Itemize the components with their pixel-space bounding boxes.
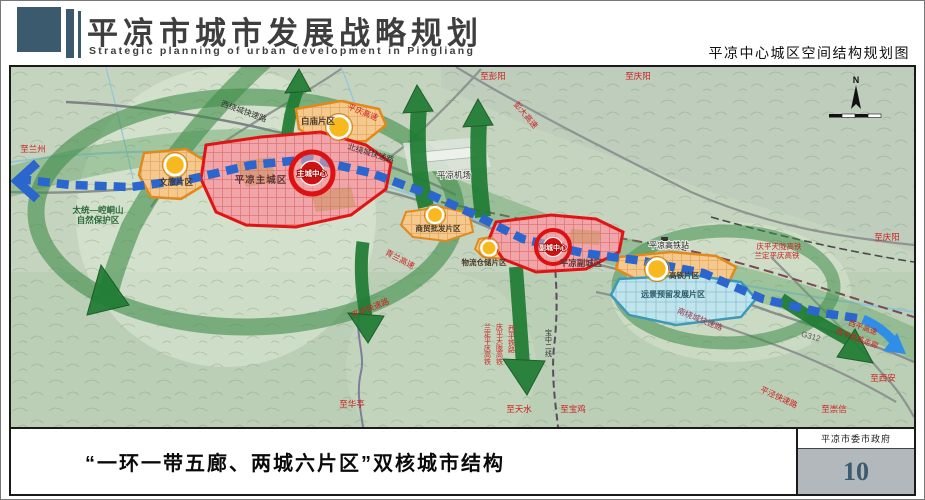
logo-bar-thin: [78, 11, 81, 58]
logo-bar-thick: [66, 9, 74, 58]
planning-document-page: 平凉市城市发展战略规划 Strategic planning of urban …: [0, 0, 925, 500]
planning-map: N 平凉主城区 主城中心 平凉副城区 副城中心 白庙片区 文旅片区 商贸批发片区…: [9, 65, 916, 429]
label-to-xian: 至西安: [870, 373, 896, 383]
label-baimiao: 白庙片区: [301, 116, 336, 126]
label-v-rail2: 宝中二线: [545, 328, 553, 357]
label-to-baoji: 至宝鸡: [560, 404, 586, 414]
center-shangmao: [425, 205, 446, 226]
label-yuanjing: 远景预留发展片区: [641, 289, 705, 299]
label-sub-center: 副城中心: [539, 243, 567, 252]
label-to-pengyang: 至彭阳: [480, 71, 506, 81]
footer-info-box: 平凉市委市政府 10: [796, 429, 914, 494]
scale-bar: [829, 114, 881, 118]
map-svg: N 平凉主城区 主城中心 平凉副城区 副城中心 白庙片区 文旅片区 商贸批发片区…: [11, 67, 914, 427]
logo-square: [17, 7, 61, 52]
label-to-huating: 至华亭: [339, 399, 365, 409]
label-to-tianshui: 至天水: [506, 404, 532, 414]
center-wenlv: [163, 153, 188, 178]
label-shangmao: 商贸批发片区: [416, 223, 461, 233]
label-to-lanzhou: 至兰州: [20, 144, 46, 154]
label-nature-reserve-1: 太统—崆峒山: [71, 205, 123, 215]
label-v-rail1: 西平铁路: [508, 325, 516, 354]
label-wuliu: 物流仓储片区: [462, 257, 507, 267]
page-number: 10: [798, 449, 914, 494]
label-hsr1: 庆平天陇高铁: [757, 241, 802, 251]
compass-n-label: N: [853, 75, 860, 85]
organization-name: 平凉市委市政府: [798, 429, 914, 449]
label-v-hsr1: 兰定平庆高铁: [484, 322, 492, 366]
label-v-hsr2: 庆平天陇高铁: [496, 322, 504, 366]
label-sub-city: 平凉副城区: [560, 258, 603, 268]
map-caption: 平凉中心城区空间结构规划图: [709, 43, 911, 63]
label-hsr2: 兰定平庆高铁: [755, 250, 800, 260]
page-subtitle: Strategic planning of urban development …: [89, 45, 475, 57]
label-airport: 平凉机场: [437, 170, 471, 180]
center-wuliu: [479, 238, 499, 258]
label-wenlv: 文旅片区: [159, 177, 194, 187]
structure-caption: “一环一带五廊、两城六片区”双核城市结构: [11, 429, 796, 494]
center-gaotie: [645, 257, 670, 282]
label-gaotie: 高铁片区: [669, 270, 699, 280]
label-main-city: 平凉主城区: [235, 174, 288, 186]
label-to-chongxin: 至崇信: [821, 404, 847, 414]
label-nature-reserve-2: 自然保护区: [77, 215, 120, 225]
page-footer: “一环一带五廊、两城六片区”双核城市结构 平凉市委市政府 10: [9, 429, 916, 496]
label-to-qingyang-right: 至庆阳: [874, 232, 900, 242]
label-to-qingyang-top: 至庆阳: [625, 71, 651, 81]
label-hsr-station: 平凉高铁站: [649, 240, 689, 250]
label-main-center: 主城中心: [297, 168, 327, 178]
